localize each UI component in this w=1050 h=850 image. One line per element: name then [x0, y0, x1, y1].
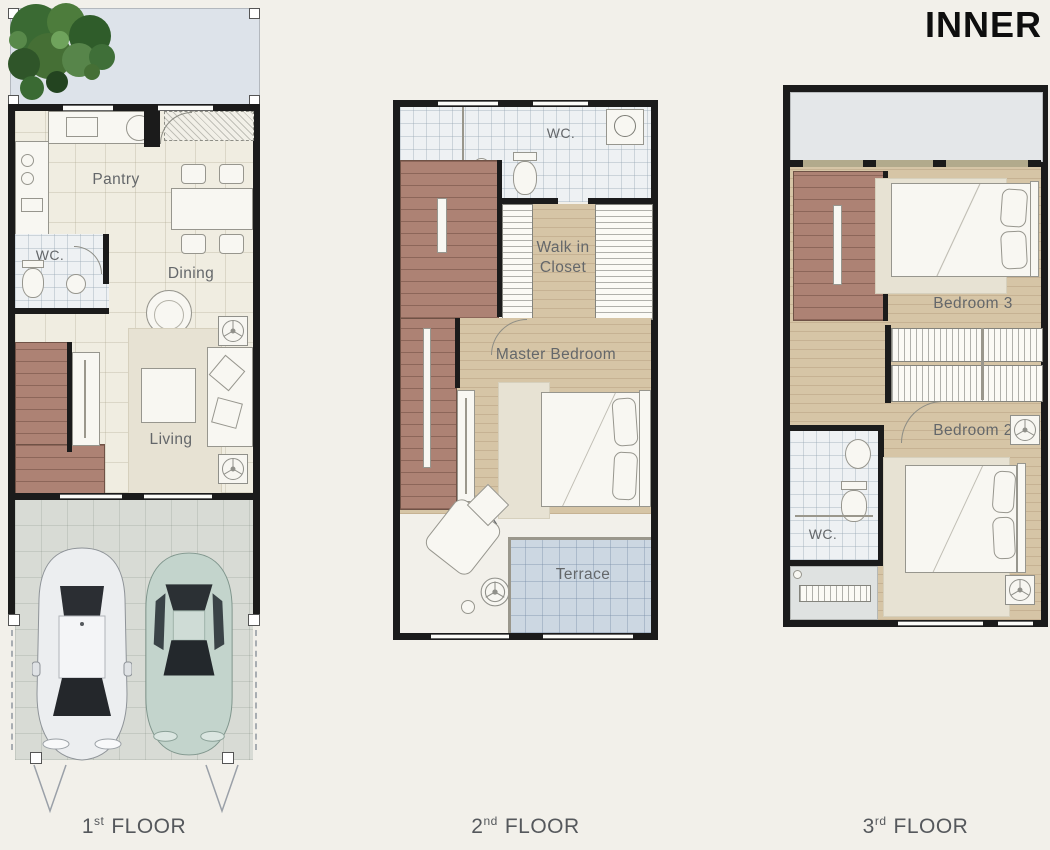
counter-appliance — [21, 198, 43, 212]
room-label-walkin: Walk in Closet — [524, 238, 602, 278]
wall — [933, 160, 946, 167]
room-label-terrace: Terrace — [556, 566, 610, 584]
wardrobe-divider — [981, 328, 984, 400]
pillow — [992, 516, 1016, 559]
wall — [1028, 160, 1041, 167]
floor1-caption-suffix: st — [94, 814, 104, 828]
floor3-plan: Bedroom 3 Bedroom 2 WC. — [783, 85, 1048, 650]
burner-icon — [21, 154, 34, 167]
room-label-pantry: Pantry — [92, 171, 139, 189]
window — [431, 634, 509, 639]
window — [144, 494, 212, 499]
balcony-floor3 — [790, 92, 1043, 162]
stair-rail — [437, 198, 447, 253]
coffee-table — [141, 368, 196, 423]
floor3-caption-number: 3 — [863, 815, 875, 838]
wall — [103, 234, 109, 284]
wall — [790, 160, 803, 167]
floorplan-sheet: INNER — [0, 0, 1050, 850]
window — [438, 101, 498, 106]
floor1-caption: 1stFLOOR — [8, 814, 260, 839]
burner-icon — [21, 172, 34, 185]
headboard — [639, 390, 651, 507]
wall — [783, 85, 790, 627]
floor3-caption: 3rdFLOOR — [783, 814, 1048, 839]
shower-partition — [795, 515, 873, 517]
window — [60, 494, 122, 499]
dining-chair — [181, 164, 206, 184]
room-label-bedroom3: Bedroom 3 — [933, 295, 1012, 313]
room-label-wc2: WC. — [547, 125, 575, 141]
driveway-boundary — [11, 630, 13, 750]
wall — [8, 493, 260, 500]
terrace-edge — [508, 537, 651, 540]
driveway-marker-icon — [8, 763, 260, 818]
toilet-icon — [841, 490, 867, 522]
floor2-caption-word: FLOOR — [505, 815, 580, 838]
floor3-caption-suffix: rd — [875, 814, 887, 828]
tree-icon — [2, 2, 137, 107]
car-white-sedan — [32, 543, 132, 765]
wall — [252, 104, 260, 624]
wall — [393, 100, 658, 107]
window — [998, 621, 1033, 626]
floor2-caption-number: 2 — [471, 815, 483, 838]
floor1-caption-word: FLOOR — [111, 815, 186, 838]
wall — [863, 160, 876, 167]
sheet-title: INNER — [880, 4, 1042, 46]
floor2-caption: 2ndFLOOR — [393, 814, 658, 839]
floor1-caption-number: 1 — [82, 815, 94, 838]
wardrobe — [891, 328, 1043, 362]
wardrobe — [595, 204, 653, 320]
stair-rail — [423, 328, 431, 468]
room-label-living: Living — [150, 431, 193, 449]
ceiling-fan-icon — [1005, 575, 1035, 605]
room-label-wc1: WC. — [36, 247, 64, 263]
wall — [783, 85, 1048, 92]
wardrobe — [891, 365, 1043, 402]
floor1-plan: WC. Pantry Dining Living — [8, 8, 260, 810]
column — [8, 614, 20, 626]
side-table — [461, 600, 475, 614]
toilet-icon — [841, 481, 867, 490]
sink-icon — [66, 117, 98, 137]
dining-chair — [219, 164, 244, 184]
tv-console — [72, 352, 100, 446]
window — [533, 101, 588, 106]
wall — [393, 100, 400, 640]
wall — [455, 318, 460, 388]
floor2-plan: WC. Walk in Closet Master Bedroom Relax — [393, 100, 658, 640]
dining-chair — [219, 234, 244, 254]
pillow — [992, 470, 1017, 513]
washer-drum-icon — [614, 115, 636, 137]
floor3-caption-word: FLOOR — [894, 815, 969, 838]
ac-unit — [799, 585, 871, 602]
pillow — [611, 397, 638, 447]
drain-icon — [793, 570, 802, 579]
toilet-icon — [513, 152, 537, 161]
room-label-master: Master Bedroom — [496, 346, 616, 364]
ceiling-fan-icon — [218, 454, 248, 484]
window — [898, 621, 983, 626]
column — [249, 8, 260, 19]
floor2-caption-suffix: nd — [483, 814, 497, 828]
tv-icon — [84, 360, 86, 438]
window — [543, 634, 633, 639]
room-label-dining: Dining — [168, 265, 214, 283]
staircase — [400, 160, 499, 319]
car-green-coupe — [140, 548, 238, 760]
basin-icon — [66, 274, 86, 294]
column — [248, 614, 260, 626]
ceiling-fan-icon — [1010, 415, 1040, 445]
room-label-wc3: WC. — [809, 526, 837, 542]
ceiling-fan-icon — [218, 316, 248, 346]
terrace-floor — [508, 537, 651, 633]
toilet-icon — [22, 268, 44, 298]
wall — [651, 100, 658, 640]
dining-chair — [181, 234, 206, 254]
armchair-cushion — [154, 300, 184, 330]
pillow — [1000, 188, 1029, 228]
headboard — [1017, 463, 1026, 573]
driveway-boundary — [255, 630, 257, 750]
dining-table — [171, 188, 253, 230]
staircase-landing — [15, 444, 105, 495]
stair-rail — [833, 205, 842, 285]
wall — [15, 308, 109, 314]
pillow — [612, 451, 638, 500]
toilet-icon — [513, 161, 537, 195]
headboard — [1030, 181, 1039, 277]
wall — [144, 111, 160, 147]
basin-icon — [845, 439, 871, 469]
tv-icon — [465, 398, 467, 494]
pillow — [1000, 230, 1028, 269]
window-sill-band — [790, 160, 1041, 167]
terrace-edge — [508, 537, 511, 633]
ceiling-fan-icon — [479, 576, 511, 608]
room-label-bedroom2: Bedroom 2 — [933, 422, 1012, 440]
